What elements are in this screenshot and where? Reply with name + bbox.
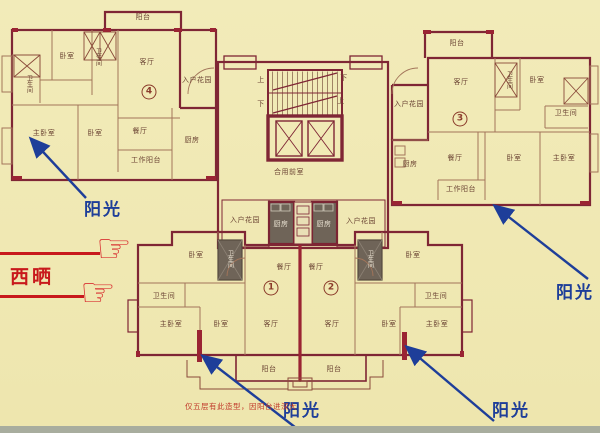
west-sun-label: 西晒 xyxy=(10,262,54,289)
core-kitchen-left-label: 厨房 xyxy=(274,219,289,229)
u1-bedroom2-label: 卧室 xyxy=(214,319,229,329)
u1-bathroom2-label: 卫生间 xyxy=(153,291,176,301)
u3-dining-label: 餐厅 xyxy=(448,153,463,163)
u4-balcony-label: 阳台 xyxy=(136,12,151,22)
floorplan-footnote: 仅五层有此造型，因阳台进深大 xyxy=(185,401,297,412)
u3-balcony-label: 阳台 xyxy=(450,38,465,48)
u2-living-label: 客厅 xyxy=(325,319,340,329)
u4-bedroom2-label: 卧室 xyxy=(88,128,103,138)
stair-up-label-2: 上 xyxy=(337,96,345,106)
sunlight-label-right: 阳光 xyxy=(556,278,594,303)
u2-bathroom2-label: 卫生间 xyxy=(425,291,448,301)
u4-kitchen-label: 厨房 xyxy=(185,135,200,145)
u2-dining-label: 餐厅 xyxy=(309,262,324,272)
unit2-number: 2 xyxy=(324,281,339,296)
u1-bathroom-label: 卫生间 xyxy=(226,250,235,268)
shared-lobby-label: 合用前室 xyxy=(274,167,304,177)
scan-edge xyxy=(0,426,600,433)
u4-work-balcony-label: 工作阳台 xyxy=(131,155,161,165)
u3-bathroom2-label: 卫生间 xyxy=(555,108,578,118)
sunlight-arrow-bottomright xyxy=(408,348,494,421)
u1-balcony-label: 阳台 xyxy=(262,364,277,374)
u1-master-label: 主卧室 xyxy=(160,319,183,329)
unit4-walls xyxy=(12,12,216,180)
u2-master-label: 主卧室 xyxy=(426,319,449,329)
u3-master-label: 主卧室 xyxy=(553,153,576,163)
u4-master-label: 主卧室 xyxy=(33,128,56,138)
u2-bedroom2-label: 卧室 xyxy=(382,319,397,329)
u3-work-balcony-label: 工作阳台 xyxy=(446,184,476,194)
balcony-outer-frame xyxy=(187,360,383,390)
unit4-number: 4 xyxy=(142,85,157,100)
u3-bedroom2-label: 卧室 xyxy=(507,153,522,163)
u3-living-label: 客厅 xyxy=(454,77,469,87)
unit1-number: 1 xyxy=(264,281,279,296)
unit3-number: 3 xyxy=(453,112,468,127)
u2-bathroom-label: 卫生间 xyxy=(366,250,375,268)
u3-kitchen-label: 厨房 xyxy=(403,159,418,169)
u1-bedroom-label: 卧室 xyxy=(189,250,204,260)
pointing-hand-icon-1: ☞ xyxy=(96,234,132,264)
stair-down-label-1: 下 xyxy=(340,73,348,83)
u2-bedroom-label: 卧室 xyxy=(406,250,421,260)
floorplan-page: 阳台 卧室 卫生间 卫生间 客厅 4 入户花园 主卧室 卧室 餐厅 工作阳台 厨… xyxy=(0,0,600,433)
elevator-shaft xyxy=(268,116,342,160)
pointing-hand-icon-2: ☞ xyxy=(80,278,116,308)
u3-bathroom-label: 卫生间 xyxy=(505,71,514,89)
sunlight-label-bottomright: 阳光 xyxy=(492,396,530,421)
sunlight-arrow-right xyxy=(496,207,588,279)
u1-dining-label: 餐厅 xyxy=(277,262,292,272)
stair-up-label-1: 上 xyxy=(257,75,265,85)
u2-entry-garden-label: 入户花园 xyxy=(346,216,376,226)
u1-entry-garden-label: 入户花园 xyxy=(230,215,260,225)
sunlight-label-topleft: 阳光 xyxy=(84,195,122,220)
u2-balcony-label: 阳台 xyxy=(327,364,342,374)
u4-bedroom-label: 卧室 xyxy=(60,51,75,61)
west-sun-line-2 xyxy=(0,295,84,298)
u4-living-label: 客厅 xyxy=(140,57,155,67)
u4-bathroom2-label: 卫生间 xyxy=(25,75,34,93)
u4-entry-garden-label: 入户花园 xyxy=(182,75,212,85)
core-kitchen-right-label: 厨房 xyxy=(317,219,332,229)
u1-living-label: 客厅 xyxy=(264,319,279,329)
u3-bedroom-label: 卧室 xyxy=(530,75,545,85)
u4-dining-label: 餐厅 xyxy=(133,126,148,136)
stair-down-label-2: 下 xyxy=(257,99,265,109)
west-sun-line-1 xyxy=(0,252,100,255)
unit3-walls xyxy=(392,32,590,205)
u4-bathroom-label: 卫生间 xyxy=(94,48,103,66)
u3-entry-garden-label: 入户花园 xyxy=(394,99,424,109)
